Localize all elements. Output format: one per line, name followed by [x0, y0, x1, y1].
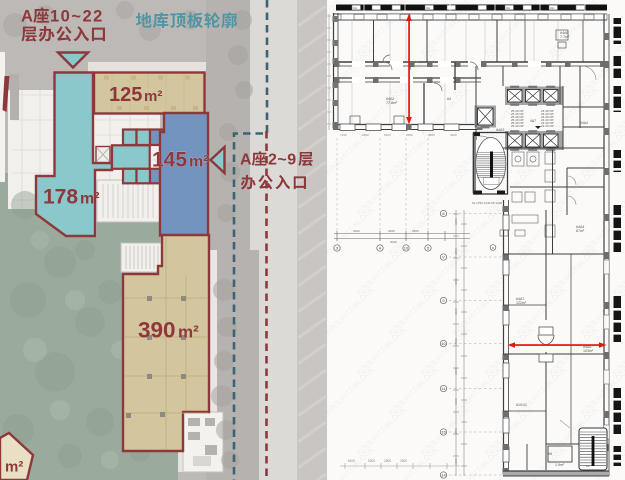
svg-text:m²: m²: [144, 88, 162, 105]
svg-text:3200: 3200: [388, 229, 395, 233]
svg-text:10: 10: [441, 341, 446, 346]
svg-text:4200: 4200: [450, 133, 457, 137]
svg-text:1850: 1850: [362, 133, 369, 137]
svg-text:2600: 2600: [406, 133, 413, 137]
svg-text:CA: CA: [550, 6, 554, 10]
svg-text:77.8m²: 77.8m²: [386, 101, 398, 105]
svg-text:15: 15: [441, 430, 446, 435]
svg-text:2~9: 2~9: [268, 152, 297, 169]
svg-text:3800: 3800: [428, 133, 435, 137]
svg-text:3600: 3600: [454, 248, 458, 255]
svg-text:3600: 3600: [454, 218, 458, 225]
svg-text:#4A3: #4A3: [496, 128, 504, 132]
svg-text:A: A: [240, 152, 252, 169]
svg-text:1#: 1#: [586, 464, 590, 468]
svg-text:A: A: [21, 8, 33, 26]
svg-text:4100: 4100: [353, 229, 360, 233]
svg-text:10~22: 10~22: [50, 8, 104, 26]
svg-text:3600: 3600: [454, 428, 458, 435]
svg-text:x: x: [492, 245, 494, 250]
svg-text:3600: 3600: [454, 338, 458, 345]
svg-text:23.40 OP: 23.40 OP: [541, 124, 554, 128]
svg-text:2900: 2900: [384, 459, 391, 463]
svg-text:m²: m²: [178, 323, 199, 342]
svg-text:#4: #4: [548, 452, 552, 456]
svg-text:#4: #4: [447, 97, 451, 101]
svg-text:5200: 5200: [384, 133, 391, 137]
svg-text:1.9m²: 1.9m²: [555, 463, 565, 467]
svg-text:m²: m²: [80, 191, 100, 208]
svg-text:125: 125: [109, 84, 142, 106]
svg-text:10: 10: [404, 246, 409, 251]
svg-text:6100: 6100: [348, 459, 355, 463]
svg-text:5200: 5200: [368, 459, 375, 463]
svg-text:CA: CA: [506, 6, 510, 10]
svg-text:3300: 3300: [400, 459, 407, 463]
svg-text:2600: 2600: [412, 229, 419, 233]
svg-text:m²: m²: [189, 154, 209, 171]
svg-text:#4A4: #4A4: [580, 121, 588, 125]
svg-text:m²: m²: [5, 459, 23, 476]
svg-text:390: 390: [138, 318, 176, 343]
svg-text:7150: 7150: [340, 133, 347, 137]
svg-text:4A7: 4A7: [530, 119, 536, 123]
svg-text:122m²: 122m²: [516, 301, 527, 305]
svg-text:V: V: [442, 255, 445, 260]
svg-text:3600: 3600: [454, 398, 458, 405]
svg-text:3600: 3600: [454, 368, 458, 375]
svg-text:25.40 OP: 25.40 OP: [511, 124, 524, 128]
svg-text:103m²: 103m²: [583, 349, 594, 353]
svg-text:145: 145: [152, 149, 187, 172]
svg-text:3600: 3600: [454, 278, 458, 285]
svg-text:01.1750 1240.05.1420: 01.1750 1240.05.1420: [472, 201, 502, 205]
svg-text:67m²: 67m²: [576, 229, 585, 233]
svg-text:6101/1: 6101/1: [516, 403, 527, 407]
svg-text:CA: CA: [426, 6, 430, 10]
svg-text:14: 14: [441, 473, 446, 478]
svg-text:7.7m²: 7.7m²: [560, 35, 570, 39]
svg-text:CA: CA: [353, 6, 357, 10]
svg-text:3600: 3600: [454, 458, 458, 465]
svg-text:3030: 3030: [390, 240, 397, 244]
svg-text:3600: 3600: [454, 308, 458, 315]
svg-text:178: 178: [43, 186, 78, 209]
